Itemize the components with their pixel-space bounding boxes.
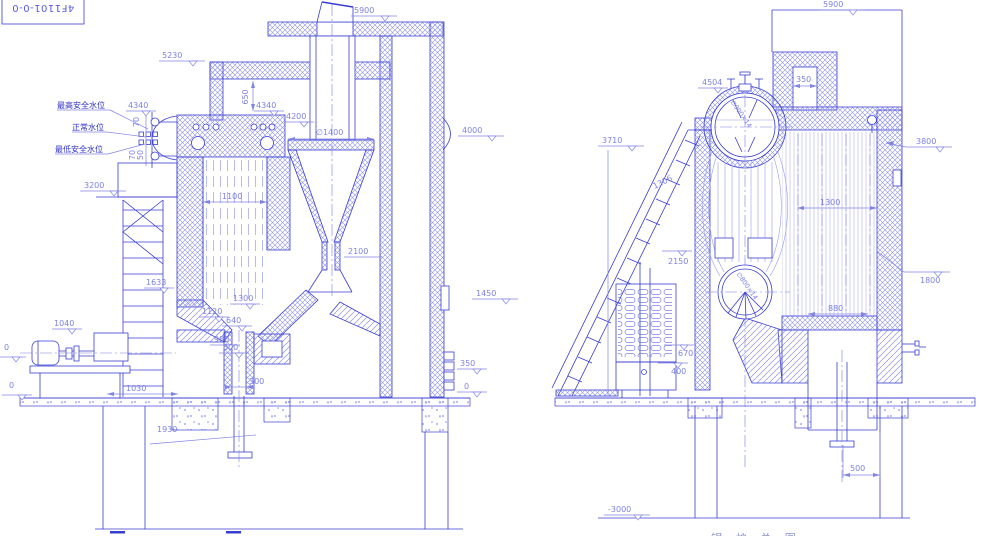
gauge-dim-70a: 70 (132, 117, 141, 127)
elevation-marker-icon (159, 61, 205, 66)
lower-drum: ∅800×14 (705, 265, 790, 319)
elevation-marker-icon (598, 146, 644, 151)
dim-label-1300: 1300 (233, 294, 253, 303)
side-section-view: ∅900×14 ∅800×14 (552, 0, 975, 536)
flue-outlet-stub (317, 2, 353, 36)
economizer (616, 284, 676, 398)
water-level-low-label: 最低安全水位 (55, 144, 103, 154)
elevation-marker-icon (604, 515, 650, 520)
level-label-1800: 1800 (920, 276, 940, 285)
clipped-caption-marks (110, 531, 241, 534)
dim-label-640: 640 (226, 316, 241, 325)
elevation-marker-icon (52, 329, 82, 334)
dim-label-cyclone-diameter: ∅1400 (316, 128, 343, 137)
drawing-caption: 锅 炉 总 图 (711, 531, 801, 536)
elevation-marker-icon (126, 111, 156, 116)
level-label-minus-3000: -3000 (608, 505, 631, 514)
level-label-0-rear: 0 (464, 382, 469, 391)
elevation-marker-icon (662, 251, 692, 256)
level-label-1040: 1040 (54, 319, 74, 328)
drawing-number: 4F1101-0-0 (12, 2, 75, 13)
elevation-marker-icon (458, 136, 504, 141)
dim-label-500: 500 (850, 464, 865, 473)
elevation-marker-icon (819, 10, 865, 15)
level-label-5900: 5900 (354, 6, 374, 15)
level-label-0a: 0 (4, 343, 9, 352)
dim-label-furnace-width: 1100 (222, 192, 242, 201)
front-section-view: 5900 5230 最高安全水位 正常水位 最低安全水位 4340 70 70 … (0, 2, 518, 534)
elevation-marker-icon (906, 147, 952, 152)
elevation-marker-icon (80, 191, 126, 196)
level-label-2150: 2150 (668, 257, 688, 266)
cad-drawing-canvas: 4F1101-0-0 (0, 0, 981, 536)
level-label-3800: 3800 (916, 137, 936, 146)
level-label-5900-right: 5900 (823, 0, 843, 9)
dim-label-1306: 1306 (651, 174, 673, 191)
level-label-3710: 3710 (602, 136, 622, 145)
level-label-5230: 5230 (162, 51, 182, 60)
level-label-400: 400 (671, 367, 686, 376)
elevation-marker-icon (144, 288, 174, 293)
elevation-marker-icon (457, 392, 487, 397)
dim-label-600: 600 (223, 343, 238, 352)
level-label-4000: 4000 (462, 126, 482, 135)
dim-label-650: 650 (241, 89, 250, 104)
boiler-general-arrangement-drawing: 4F1101-0-0 (0, 0, 981, 536)
grate-drive-motor (20, 333, 176, 398)
level-label-0b: 0 (9, 381, 14, 390)
elevation-marker-icon (472, 299, 518, 304)
dim-label-1120: 1120 (202, 307, 222, 316)
elevation-marker-icon (219, 353, 249, 358)
dim-label-1633: 1633 (146, 278, 166, 287)
water-level-normal-label: 正常水位 (72, 122, 104, 132)
water-level-high-label: 最高安全水位 (57, 100, 105, 110)
chimney-and-flue (772, 10, 902, 110)
elevation-marker-icon (351, 16, 397, 21)
level-label-3200: 3200 (84, 181, 104, 190)
level-label-350: 350 (460, 359, 475, 368)
dim-label-880: 880 (828, 304, 843, 313)
elevation-marker-icon (284, 122, 314, 127)
dim-label-300: 300 (249, 377, 264, 386)
level-label-670: 670 (678, 349, 693, 358)
level-label-4504: 4504 (702, 78, 722, 87)
dim-label-flue-350: 350 (796, 75, 811, 84)
foundation-left (20, 330, 470, 529)
dim-label-1930: 1930 (157, 425, 177, 434)
level-label-1450: 1450 (476, 289, 496, 298)
title-block: 4F1101-0-0 (2, 0, 84, 24)
dim-label-bank-1300: 1300 (820, 198, 840, 207)
dim-label-1030: 1030 (126, 384, 146, 393)
level-label-4340-gauge: 4340 (128, 101, 148, 110)
level-label-4200: 4200 (286, 112, 306, 121)
level-label-4340: 4340 (256, 101, 276, 110)
gauge-dim-50: 50 (136, 150, 145, 160)
elevation-marker-icon (457, 369, 487, 374)
dim-label-2100: 2100 (348, 247, 368, 256)
elevation-marker-icon (0, 357, 26, 362)
